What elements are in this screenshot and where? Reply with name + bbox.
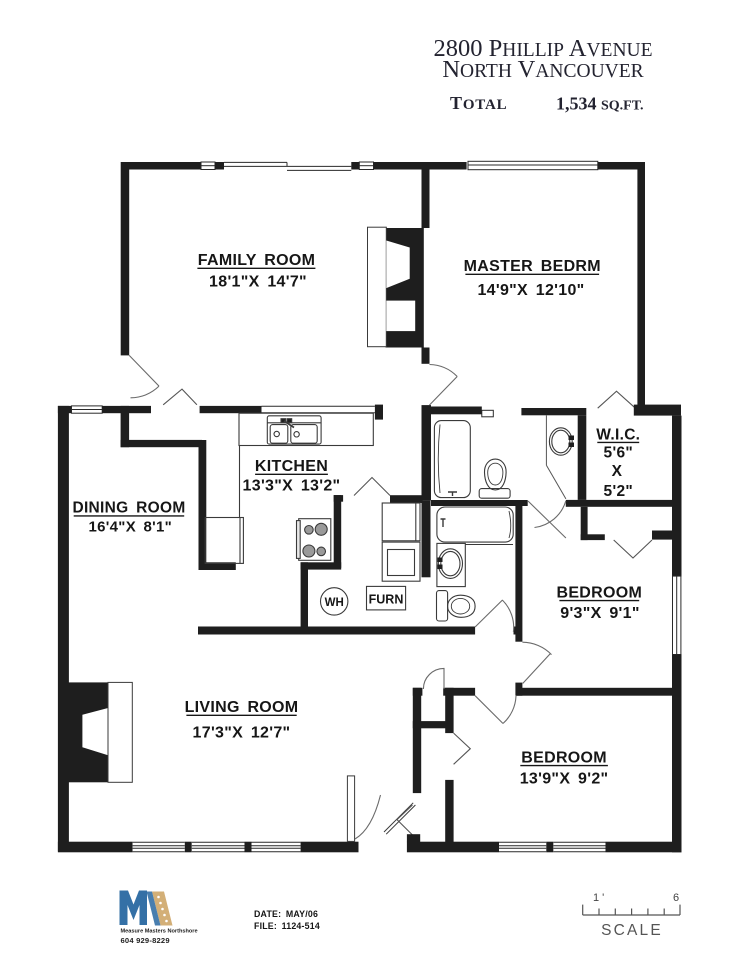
svg-text:604 929-8229: 604 929-8229 bbox=[121, 936, 170, 945]
svg-text:W.I.C.: W.I.C. bbox=[596, 426, 640, 443]
svg-text:6: 6 bbox=[673, 892, 679, 904]
svg-text:5'2": 5'2" bbox=[604, 483, 633, 500]
svg-text:FAMILY ROOM: FAMILY ROOM bbox=[198, 252, 315, 269]
svg-text:WH: WH bbox=[325, 597, 344, 609]
svg-text:13'9"X 9'2": 13'9"X 9'2" bbox=[520, 771, 609, 788]
svg-text:LIVING ROOM: LIVING ROOM bbox=[185, 699, 299, 716]
svg-text:BEDROOM: BEDROOM bbox=[521, 749, 607, 766]
svg-text:Measure Masters Northshore: Measure Masters Northshore bbox=[121, 929, 198, 935]
svg-text:14'9"X 12'10": 14'9"X 12'10" bbox=[477, 282, 584, 299]
svg-text:MASTER BEDRM: MASTER BEDRM bbox=[464, 258, 601, 275]
svg-text:BEDROOM: BEDROOM bbox=[556, 584, 642, 601]
svg-text:13'3"X 13'2": 13'3"X 13'2" bbox=[243, 477, 341, 494]
svg-text:DINING ROOM: DINING ROOM bbox=[72, 500, 185, 517]
svg-text:DATE: MAY/06: DATE: MAY/06 bbox=[254, 909, 318, 919]
svg-text:NORTH VANCOUVER: NORTH VANCOUVER bbox=[442, 56, 643, 83]
svg-text:1 ': 1 ' bbox=[593, 892, 604, 904]
svg-text:18'1"X 14'7": 18'1"X 14'7" bbox=[209, 274, 307, 291]
svg-text:2800 PHILLIP AVENUE: 2800 PHILLIP AVENUE bbox=[433, 35, 652, 62]
svg-text:X: X bbox=[612, 463, 623, 480]
svg-text:FILE: 1124-514: FILE: 1124-514 bbox=[254, 921, 320, 931]
svg-text:SCALE: SCALE bbox=[601, 922, 663, 939]
svg-text:5'6": 5'6" bbox=[604, 445, 633, 462]
svg-text:9'3"X 9'1": 9'3"X 9'1" bbox=[560, 605, 640, 622]
svg-text:FURN: FURN bbox=[369, 593, 404, 607]
svg-text:KITCHEN: KITCHEN bbox=[255, 458, 328, 475]
svg-text:16'4"X 8'1": 16'4"X 8'1" bbox=[89, 519, 173, 536]
svg-text:17'3"X 12'7": 17'3"X 12'7" bbox=[193, 725, 291, 742]
